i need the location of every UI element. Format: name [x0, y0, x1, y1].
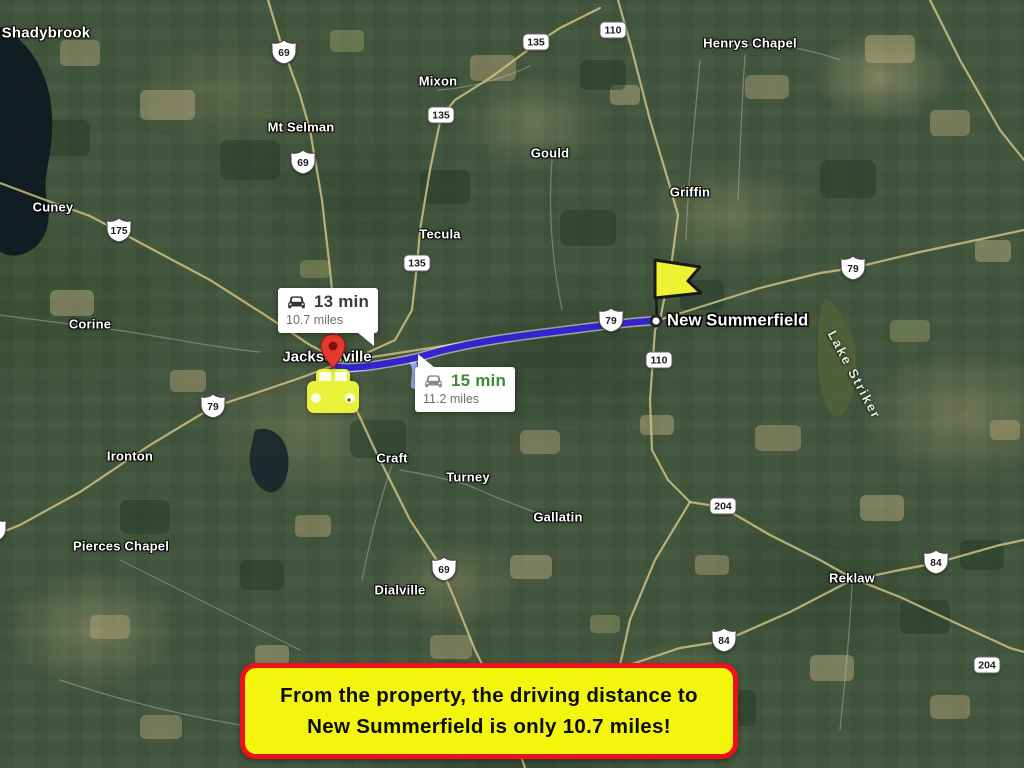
primary-distance: 10.7 miles: [286, 313, 369, 327]
us-route-shield-79: 79: [0, 517, 8, 543]
state-highway-shield-204: 204: [974, 657, 1001, 674]
route-endpoint-dot: [650, 315, 663, 328]
us-route-shield-84: 84: [922, 549, 950, 575]
svg-text:69: 69: [278, 48, 290, 59]
state-highway-shield-135: 135: [523, 34, 550, 51]
svg-text:84: 84: [930, 558, 942, 569]
primary-duration: 13 min: [314, 292, 369, 312]
us-route-shield-69: 69: [289, 149, 317, 175]
svg-text:69: 69: [438, 565, 450, 576]
distance-banner: From the property, the driving distance …: [240, 663, 738, 759]
car-icon: [286, 295, 307, 310]
svg-text:84: 84: [718, 636, 730, 647]
state-highway-shield-110: 110: [600, 22, 627, 39]
bubble-tail: [418, 354, 435, 368]
us-route-shield-84: 84: [710, 627, 738, 653]
state-highway-shield-204: 204: [710, 498, 737, 515]
us-route-shield-175: 175: [105, 217, 133, 243]
svg-text:79: 79: [207, 402, 219, 413]
us-route-shield-69: 69: [270, 39, 298, 65]
bubble-tail: [357, 332, 374, 346]
banner-line-2: New Summerfield is only 10.7 miles!: [307, 711, 671, 742]
svg-text:79: 79: [847, 264, 859, 275]
us-route-shield-79: 79: [839, 255, 867, 281]
state-highway-shield-135: 135: [404, 255, 431, 272]
car-icon: [423, 374, 444, 389]
origin-pin-marker[interactable]: [320, 334, 346, 368]
state-highway-shield-110: 110: [646, 352, 673, 369]
alternate-distance: 11.2 miles: [423, 392, 506, 406]
satellite-map[interactable]: ShadybrookMixonHenrys ChapelMt SelmanGou…: [0, 0, 1024, 768]
destination-town-label: New Summerfield: [667, 312, 808, 331]
route-info-bubble-alternate[interactable]: 15 min 11.2 miles: [415, 367, 515, 412]
banner-line-1: From the property, the driving distance …: [280, 680, 698, 711]
us-route-shield-79: 79: [597, 307, 625, 333]
svg-text:69: 69: [297, 158, 309, 169]
us-route-shield-69: 69: [430, 556, 458, 582]
us-route-shield-79: 79: [199, 393, 227, 419]
svg-text:175: 175: [110, 226, 127, 237]
svg-text:79: 79: [605, 316, 617, 327]
route-info-bubble-primary[interactable]: 13 min 10.7 miles: [278, 288, 378, 333]
alternate-duration: 15 min: [451, 371, 506, 391]
state-highway-shield-135: 135: [428, 107, 455, 124]
car-marker[interactable]: [306, 369, 360, 415]
